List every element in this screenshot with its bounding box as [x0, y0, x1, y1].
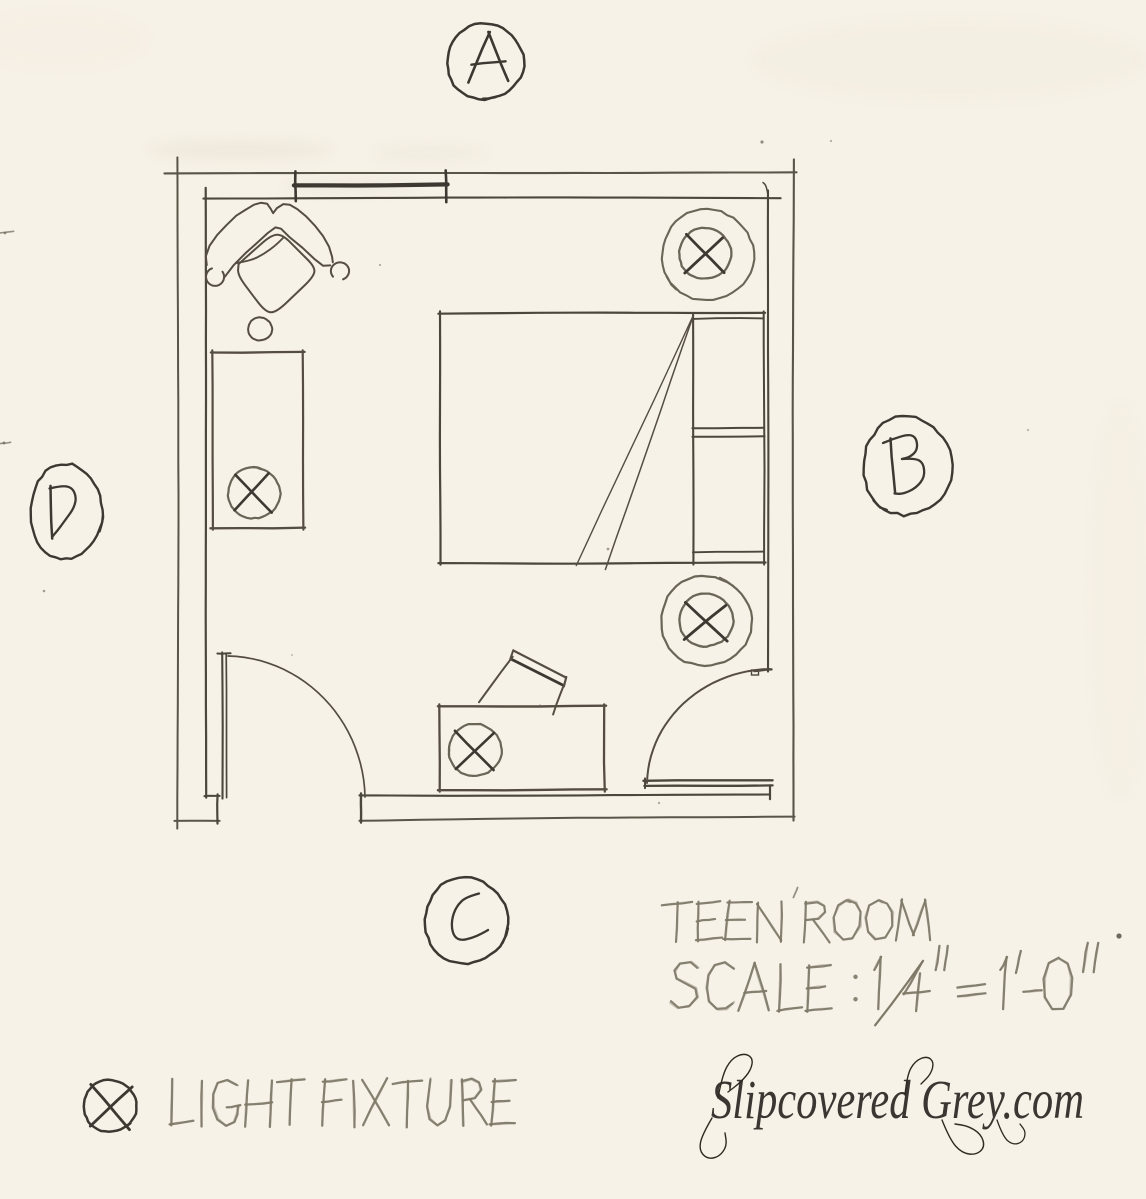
svg-text:Slipcovered Grey.com: Slipcovered Grey.com: [711, 1069, 1084, 1130]
